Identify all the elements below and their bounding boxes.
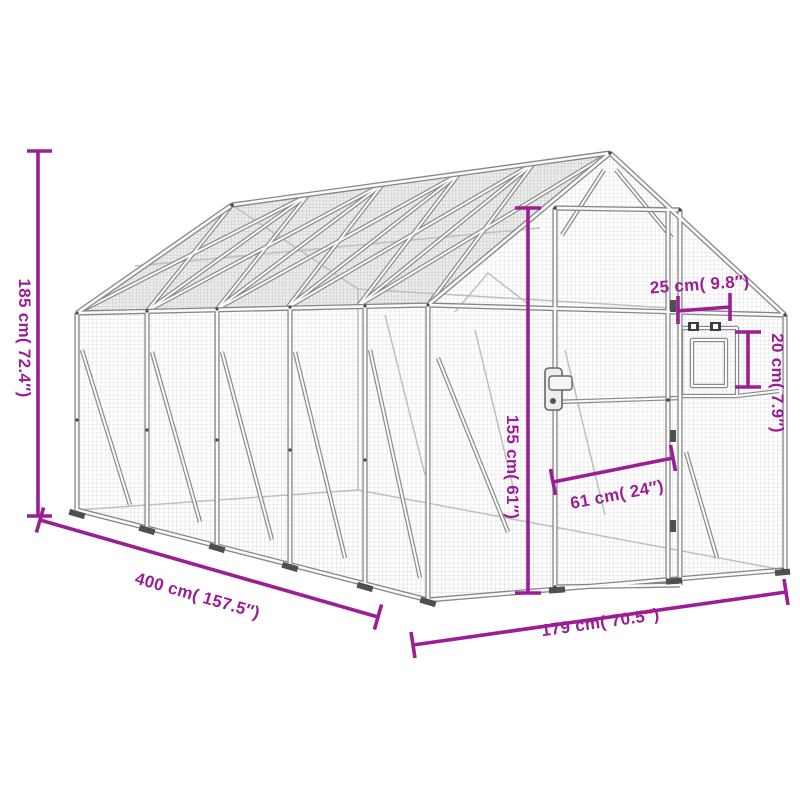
- window-height-label: 20 cm( 7.9″): [768, 333, 787, 433]
- overall-height-label: 185 cm( 72.4″): [15, 278, 34, 397]
- aviary-dimension-diagram: 185 cm( 72.4″) 400 cm( 157.5″) 179 cm( 7…: [0, 0, 800, 800]
- door-height-label: 155 cm( 61″): [503, 415, 522, 519]
